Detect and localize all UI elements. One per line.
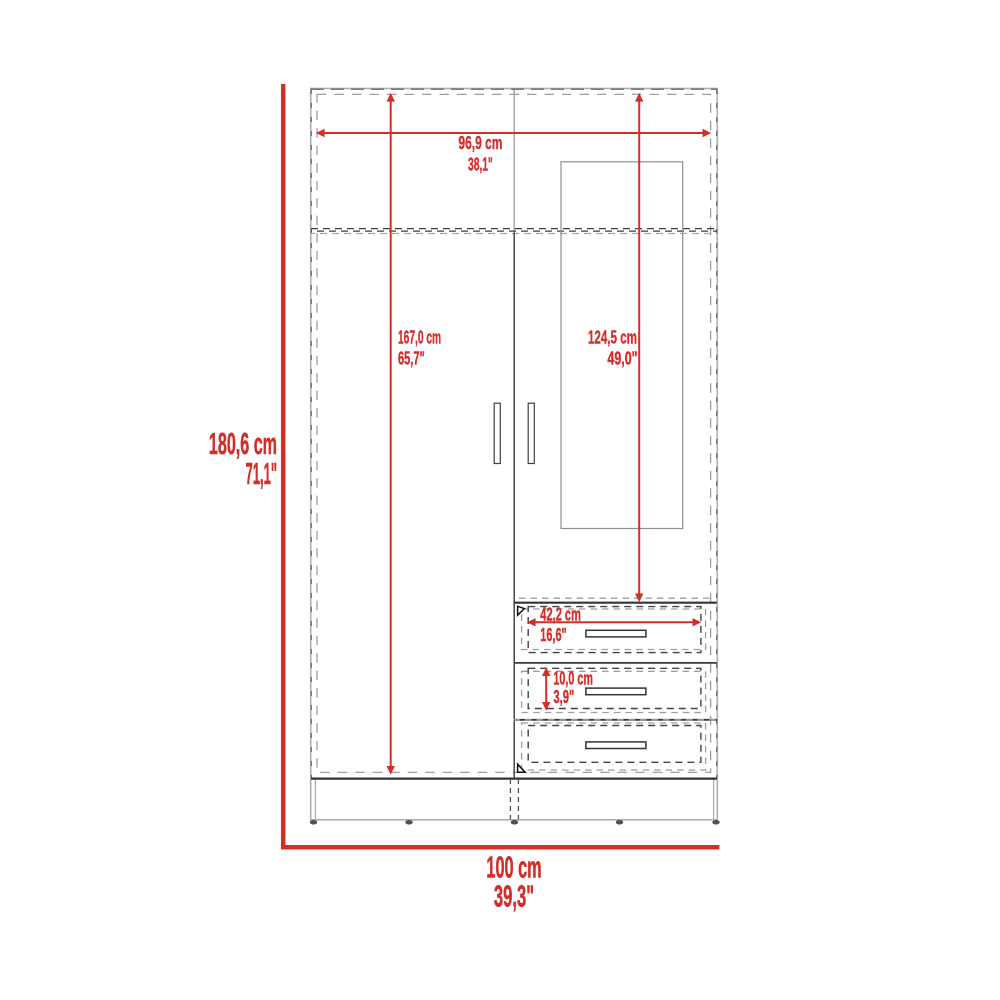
svg-text:16,6": 16,6" — [540, 625, 566, 646]
svg-text:3,9": 3,9" — [553, 687, 574, 708]
svg-text:39,3": 39,3" — [494, 879, 534, 914]
svg-text:167,0 cm: 167,0 cm — [398, 328, 441, 349]
svg-text:38,1": 38,1" — [468, 154, 493, 175]
svg-text:42,2 cm: 42,2 cm — [540, 605, 581, 626]
svg-text:49,0": 49,0" — [607, 349, 637, 369]
svg-text:10,0 cm: 10,0 cm — [553, 669, 593, 690]
svg-text:124,5 cm: 124,5 cm — [588, 328, 637, 348]
svg-text:65,7": 65,7" — [398, 349, 425, 370]
svg-text:96,9 cm: 96,9 cm — [458, 133, 502, 153]
svg-text:71,1": 71,1" — [245, 457, 277, 492]
